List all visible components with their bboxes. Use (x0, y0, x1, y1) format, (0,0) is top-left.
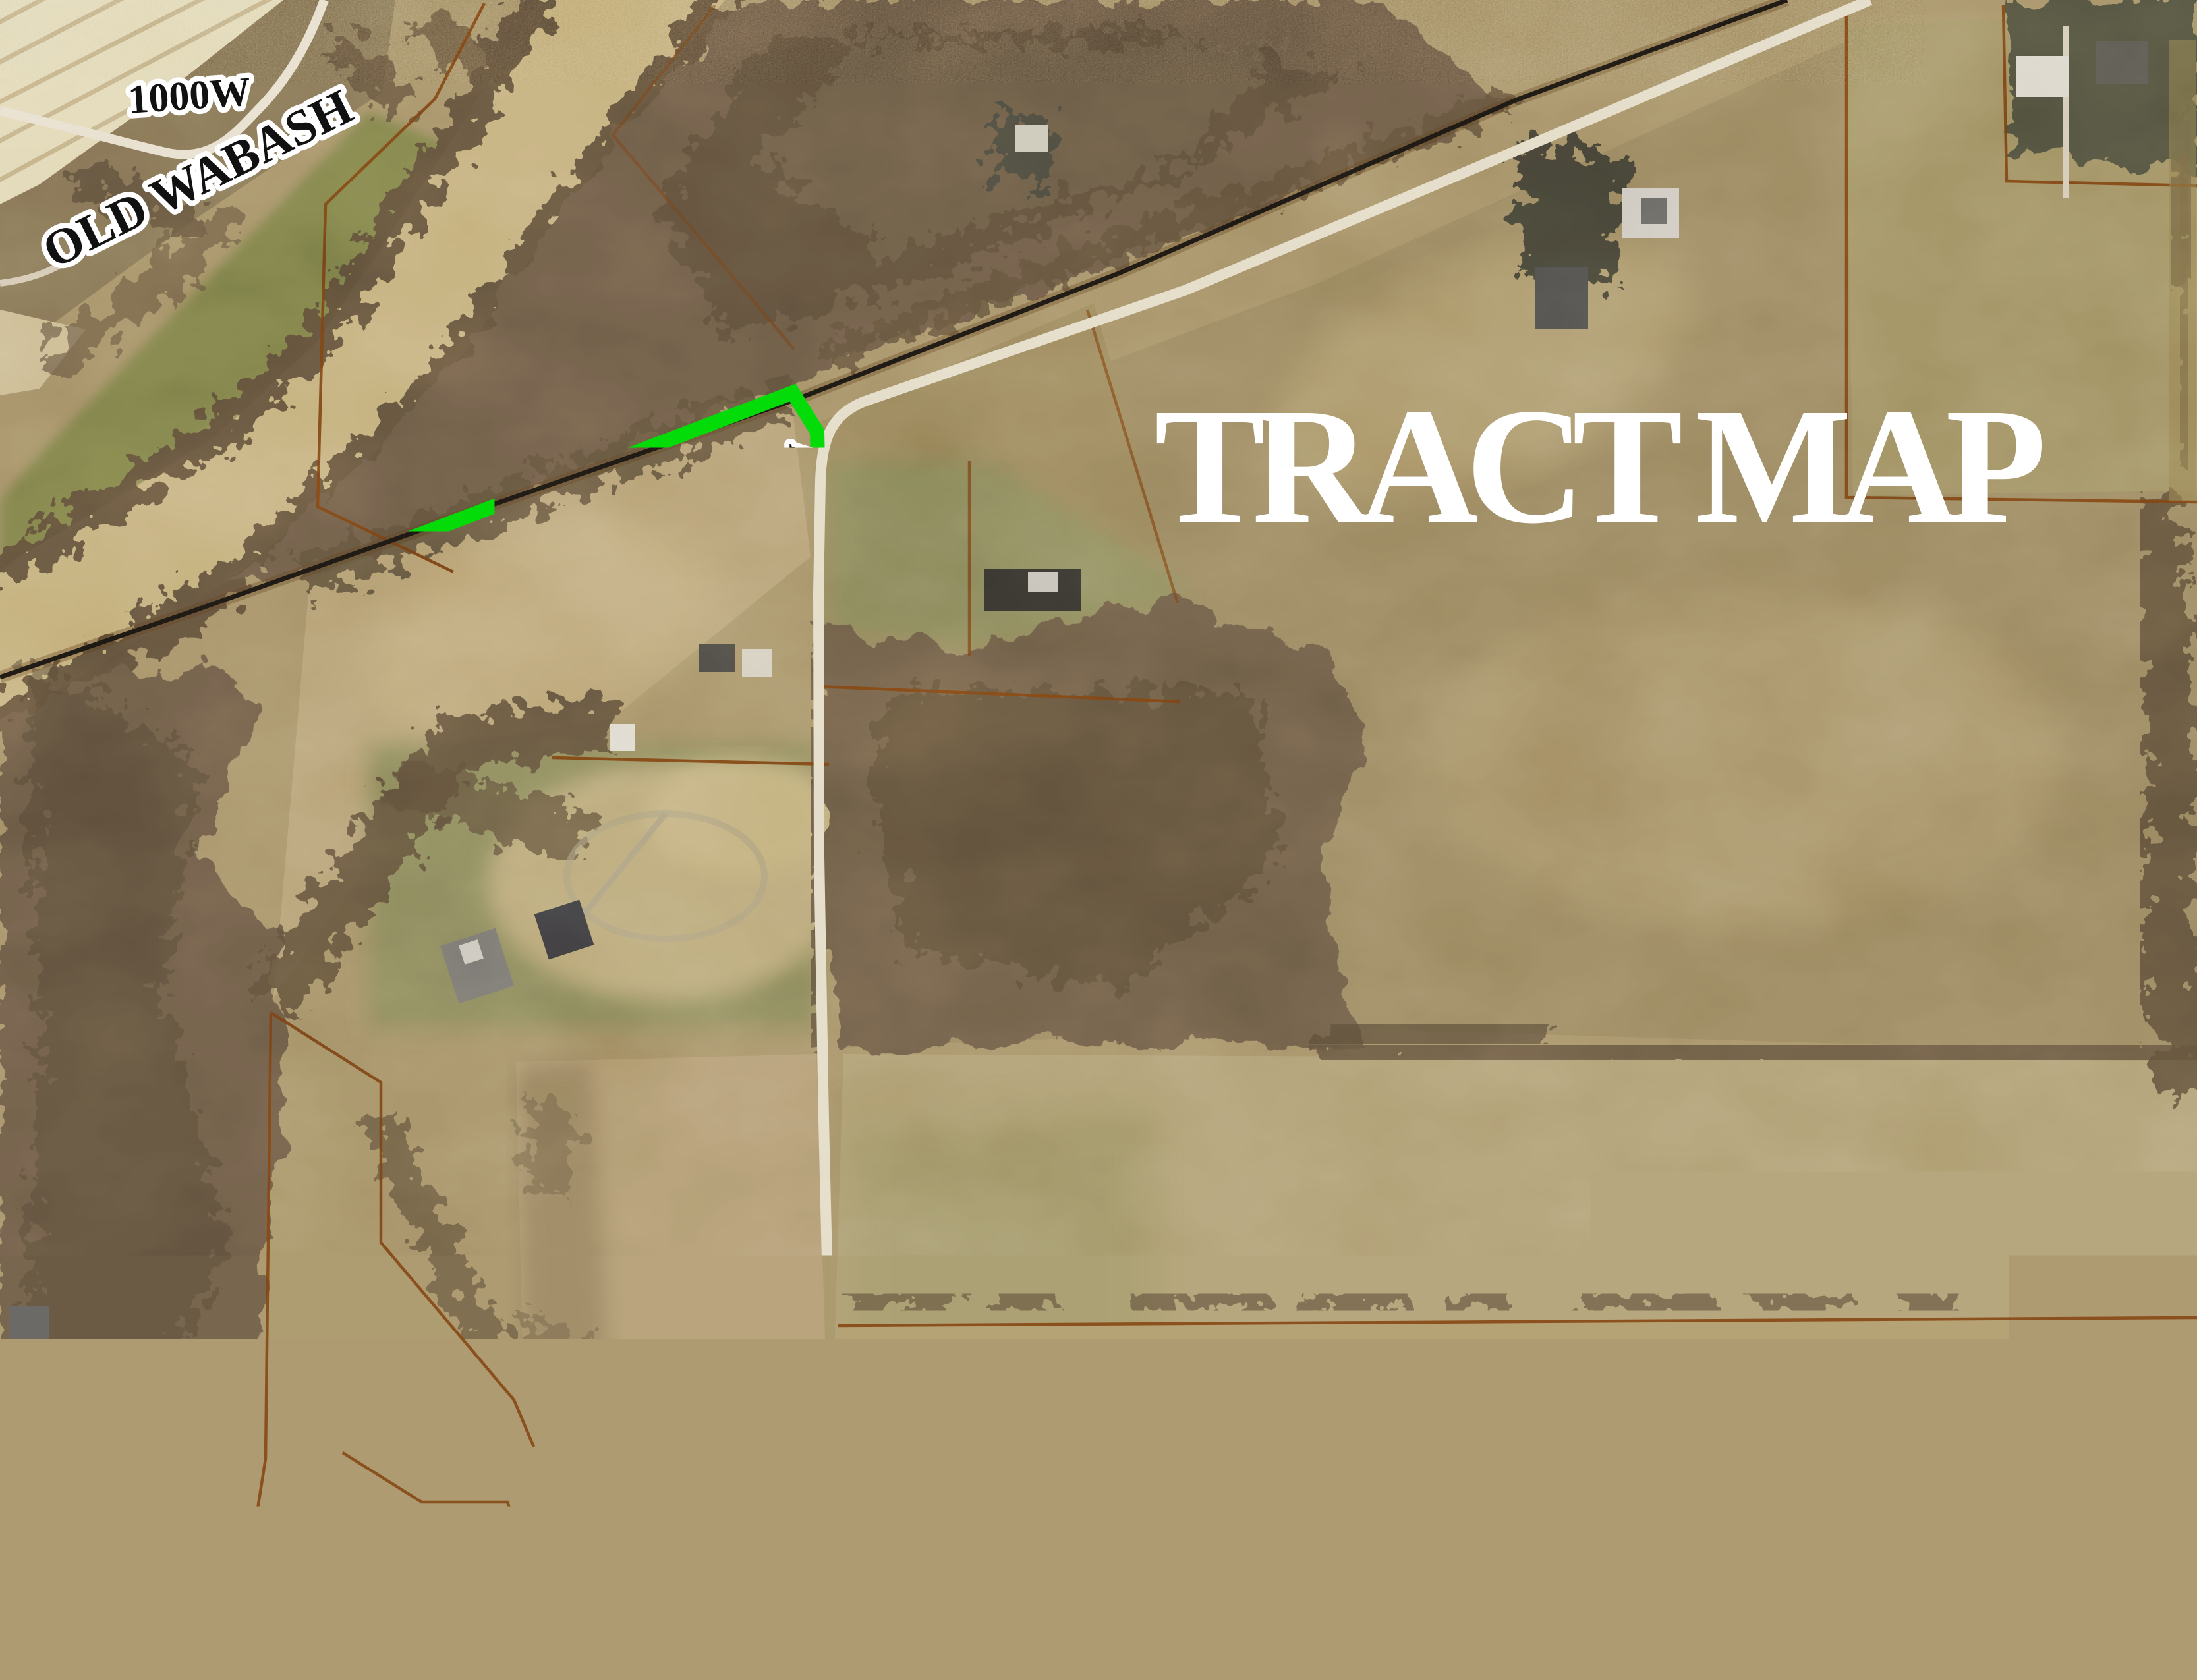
svg-text:375 W: 375 W (780, 443, 826, 559)
svg-text:100N: 100N (486, 1420, 579, 1469)
svg-text:TRACT MAP: TRACT MAP (1155, 374, 2042, 558)
svg-text:TRACT 2: TRACT 2 (606, 1105, 701, 1436)
svg-text:6.8+/- acres: 6.8+/- acres (701, 1128, 772, 1440)
svg-text:1000W: 1000W (127, 69, 252, 123)
